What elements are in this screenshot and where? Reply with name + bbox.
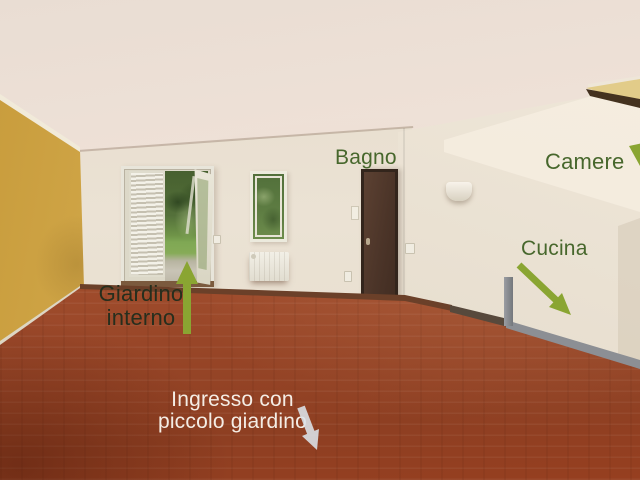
wall-corner-line — [403, 128, 405, 304]
door-handle — [366, 238, 370, 245]
ingresso-line2: piccolo giardino — [150, 411, 315, 433]
ingresso-line1: Ingresso con — [150, 389, 315, 411]
ingresso-label: Ingresso con piccolo giardino — [150, 389, 315, 433]
wall-socket — [405, 243, 415, 254]
giardino-line2: interno — [98, 306, 184, 330]
radiator — [249, 252, 289, 281]
giardino-line1: Giardino — [98, 282, 184, 306]
venetian-blind-panel — [129, 171, 165, 277]
window — [250, 171, 287, 242]
radiator-knob — [251, 254, 256, 259]
cucina-label: Cucina — [521, 237, 588, 261]
window-sash — [255, 176, 282, 237]
property-photo: Bagno Camere Cucina Giardino interno Ing… — [0, 0, 640, 480]
wall-sconce-light — [446, 182, 472, 201]
light-switch — [351, 206, 359, 220]
bathroom-door — [361, 169, 398, 302]
bagno-label: Bagno — [335, 146, 397, 170]
wall-socket — [213, 235, 221, 244]
giardino-interno-label: Giardino interno — [98, 282, 184, 330]
camere-label: Camere — [545, 149, 624, 175]
wall-socket — [344, 271, 352, 282]
stair-newel-post — [504, 277, 513, 326]
